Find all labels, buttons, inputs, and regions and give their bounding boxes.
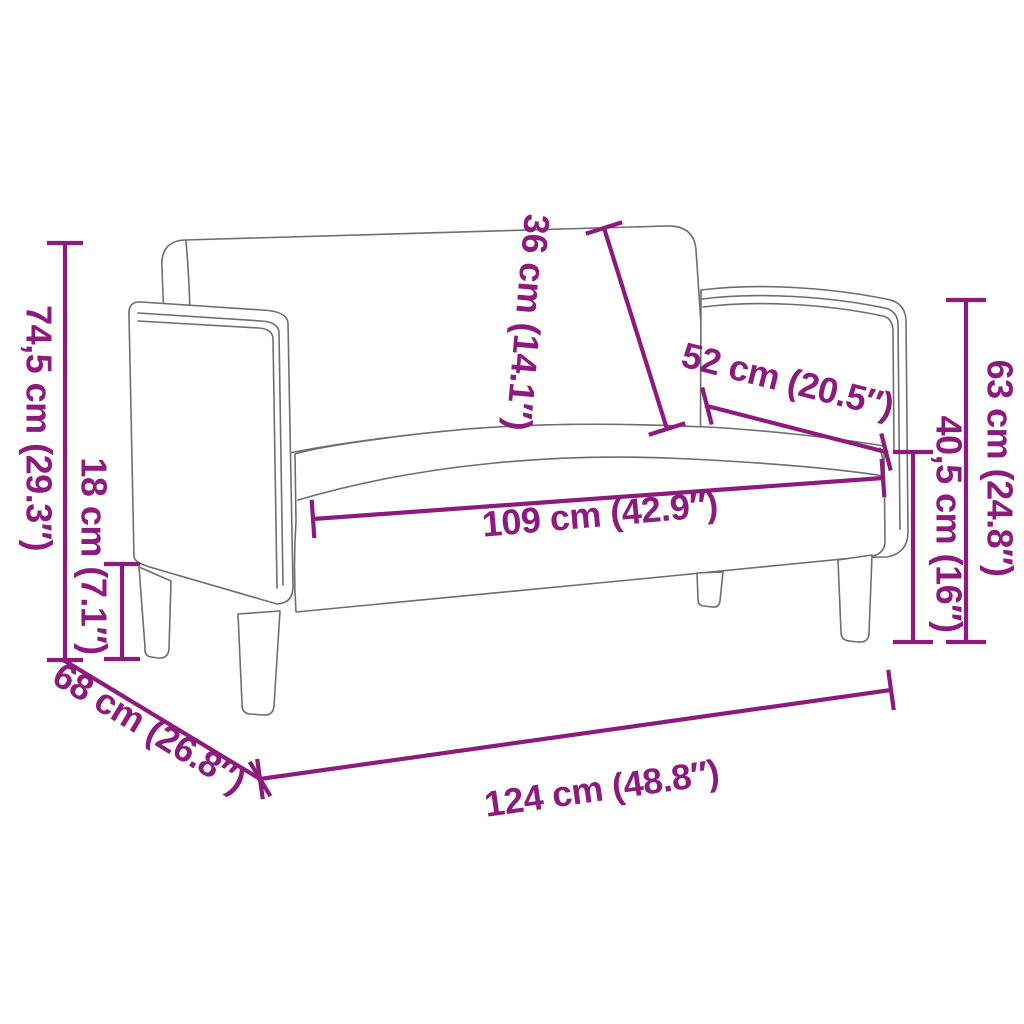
dimension-diagram: 74,5 cm (29.3″) 18 cm (7.1″) 36 cm (14.1… <box>0 0 1024 1024</box>
dimension-label: 63 cm (24.8″) <box>979 360 1020 577</box>
dimension-label: 40,5 cm (16″) <box>928 416 969 633</box>
sofa-dimension-svg: 74,5 cm (29.3″) 18 cm (7.1″) 36 cm (14.1… <box>0 0 1024 1024</box>
sofa-leg-back-right <box>697 572 723 607</box>
dimension-total-width: 124 cm (48.8″) <box>258 672 894 825</box>
dimension-label: 124 cm (48.8″) <box>482 751 722 825</box>
dimension-total-depth: 68 cm (26.8″) <box>46 654 269 801</box>
dimension-label: 74,5 cm (29.3″) <box>18 305 59 551</box>
sofa-leg-front-left <box>238 611 280 715</box>
sofa-left-armrest <box>129 302 293 604</box>
dimension-label: 18 cm (7.1″) <box>73 457 114 654</box>
sofa-leg-back-left <box>139 567 171 658</box>
sofa-leg-front-right <box>838 555 872 642</box>
dimension-leg-height: 18 cm (7.1″) <box>73 457 138 659</box>
dimension-label: 68 cm (26.8″) <box>46 654 253 801</box>
dimension-total-height: 74,5 cm (29.3″) <box>18 243 81 660</box>
